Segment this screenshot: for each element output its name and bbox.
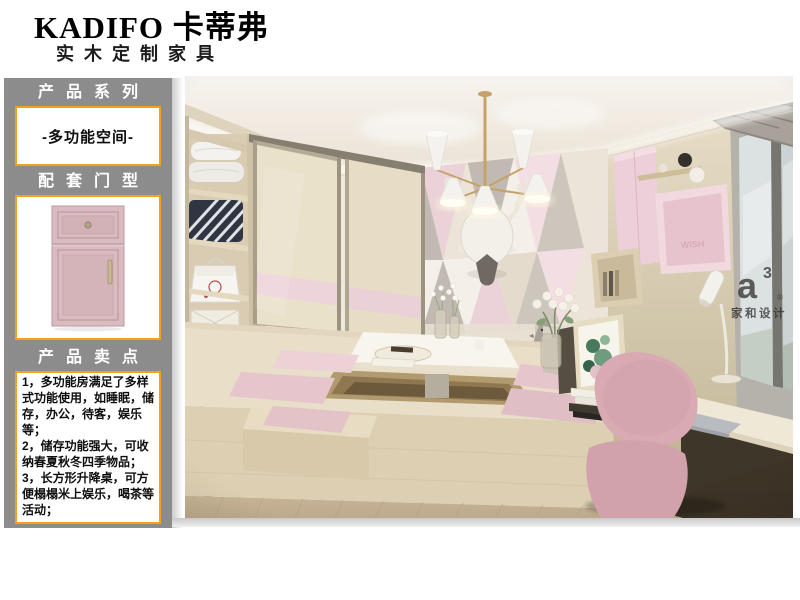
door-type-header: 配套门型 [4,172,172,192]
room-render-photo: WISH [185,76,793,518]
series-value-box: -多功能空间- [15,106,161,166]
photo-bottom-shadow [172,518,800,527]
sidebar-shadow [172,78,183,528]
series-value: -多功能空间- [42,126,134,147]
selling-point-2: 2，储存功能强大，可收纳春夏秋冬四季物品； [22,439,154,471]
product-info-sidebar: 产品系列 -多功能空间- 配套门型 产品卖点 1，多功能房满足了多样式功能使用，… [4,78,172,528]
selling-point-3: 3，长方形升降桌，可方便榻榻米上娱乐，喝茶等活动； [22,471,154,519]
door-type-box [15,195,161,340]
brand-tagline: 实木定制家具 [56,40,224,66]
vignette [185,76,793,518]
selling-point-1: 1，多功能房满足了多样式功能使用，如睡眠，储存，办公，待客，娱乐等； [22,375,154,439]
poster-page: KADIFO 卡蒂弗 实木定制家具 产品系列 -多功能空间- 配套门型 产品卖点 [0,0,800,600]
series-header: 产品系列 [4,83,172,103]
selling-points-box: 1，多功能房满足了多样式功能使用，如睡眠，储存，办公，待客，娱乐等； 2，储存功… [15,371,161,524]
selling-points-header: 产品卖点 [4,348,172,368]
door-drawing-icon [48,204,128,332]
